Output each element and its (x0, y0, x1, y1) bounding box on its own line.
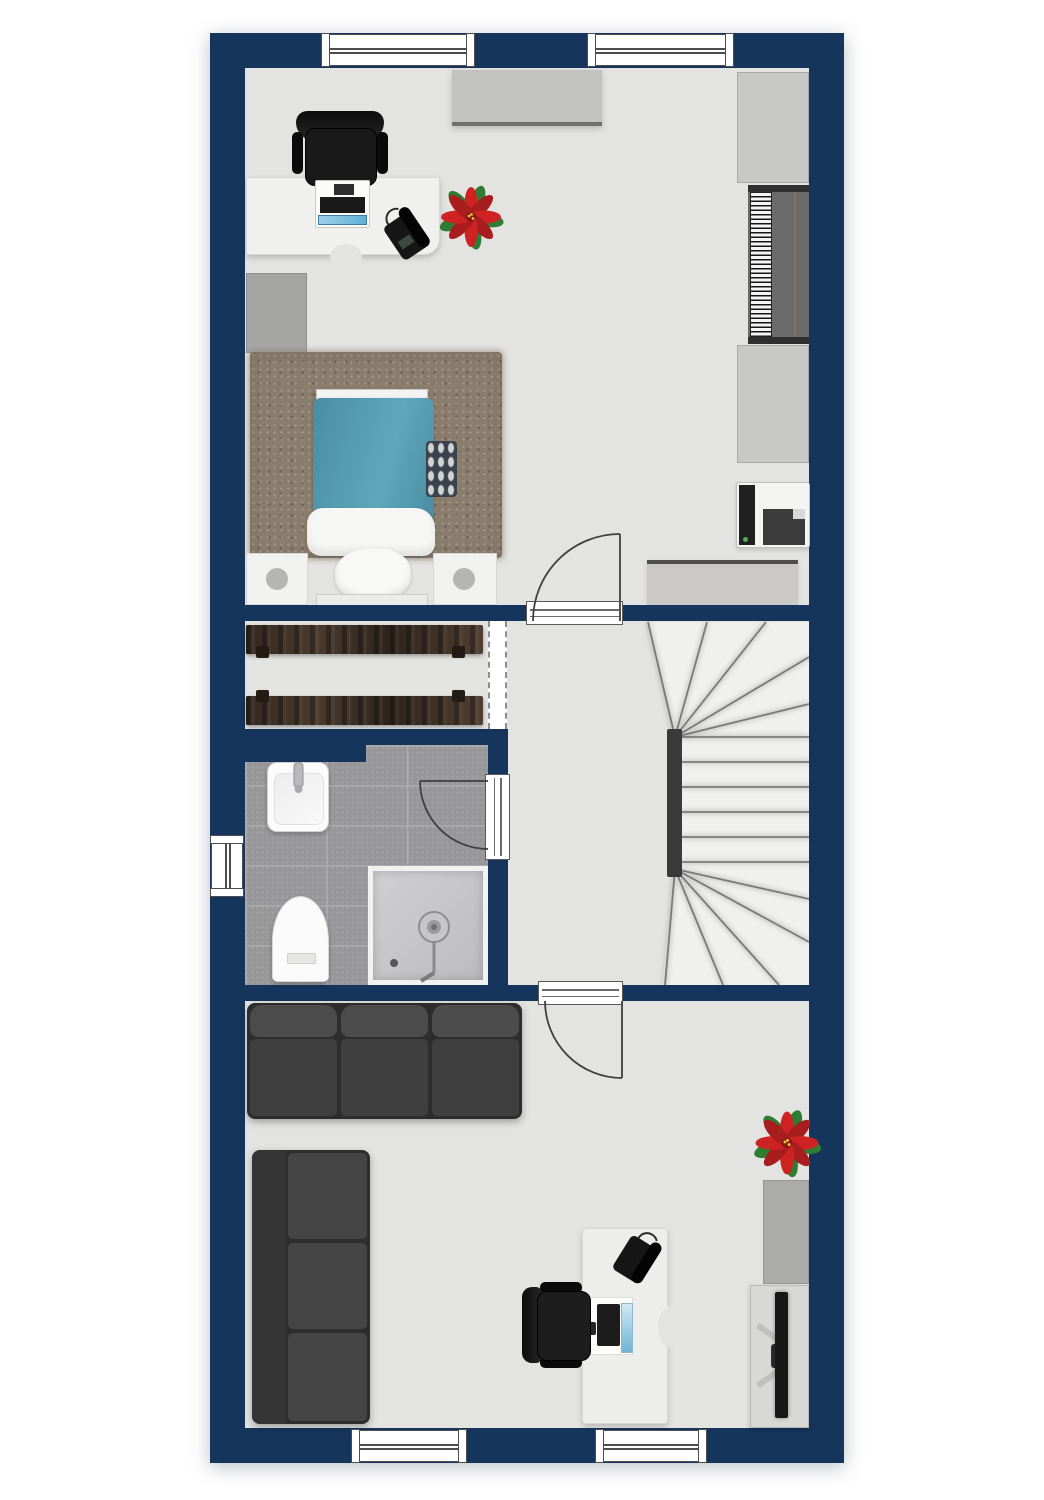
piano-keys (750, 192, 772, 337)
sofa-seat-cushion (250, 1039, 337, 1116)
printer-paper-tray (318, 215, 367, 225)
sofa-three-seat-top (247, 1003, 522, 1119)
sofa-seat-cushion (432, 1039, 519, 1116)
sofa-back-cushion (432, 1005, 519, 1037)
rail-bottom-tab-left (256, 690, 269, 702)
sofa-seat-cushion (341, 1039, 428, 1116)
fax-paper-corner (793, 509, 805, 519)
bathroom-door-threshold (485, 774, 510, 860)
fax-green-button (743, 537, 748, 542)
washbasin-bowl (274, 773, 324, 825)
office-chair-bedroom (290, 109, 390, 185)
piano (748, 185, 809, 344)
wall-bathroom-step2 (245, 745, 366, 762)
south-sideboard (647, 560, 798, 609)
east-cabinet-living (763, 1180, 809, 1284)
computer-keyboard (597, 1304, 620, 1346)
fax-control-strip (739, 485, 755, 545)
sofa-back-strip (252, 1150, 286, 1424)
computer-monitor (621, 1303, 633, 1353)
nightstand-left-knob (266, 568, 288, 590)
living-door-threshold (538, 981, 623, 1005)
chair-arm-left (292, 132, 303, 174)
washbasin (267, 762, 329, 832)
rail-bottom-tab-right (452, 690, 465, 702)
piano-string-line (794, 192, 796, 337)
window-bottom-right (596, 1430, 706, 1462)
living-desk-notch (658, 1306, 684, 1348)
printer-panel (320, 197, 365, 213)
window-top-right (588, 34, 733, 66)
floorplan-canvas (0, 0, 1044, 1500)
sofa-three-seat-left (252, 1150, 370, 1424)
rail-top-tab-left (256, 646, 269, 658)
computer-workstation (588, 1297, 633, 1355)
bedroom-door-threshold (526, 601, 623, 625)
wardrobe-north (737, 72, 809, 183)
room-landing (508, 621, 809, 985)
wall-hall-west-lower (487, 858, 508, 1001)
desktop-printer (315, 180, 370, 228)
bed-cushion-patterned (426, 441, 457, 497)
rail-top-tab-right (452, 646, 465, 658)
chair-seat (305, 128, 377, 186)
sofa-back-cushion (250, 1005, 337, 1037)
sofa-seat-cushion (288, 1153, 367, 1239)
sofa-seat-cushion (288, 1333, 367, 1421)
nightstand-right-knob (453, 568, 475, 590)
wall-closet-south (245, 729, 508, 745)
wall-dresser (452, 70, 602, 126)
toilet (272, 896, 329, 982)
bed-duvet (313, 398, 434, 518)
west-cabinet (246, 273, 307, 353)
office-chair-living (520, 1280, 592, 1370)
wall-hall-west-upper (487, 729, 508, 776)
chair-seat (537, 1291, 591, 1361)
wardrobe-rail-top (246, 625, 483, 654)
printer-fax-unit (736, 482, 810, 548)
window-top-left (322, 34, 474, 66)
sofa-seat-cushion (288, 1243, 367, 1329)
toilet-lid-hinge (287, 953, 316, 964)
bedroom-desk-notch (330, 244, 362, 270)
window-bottom-left (352, 1430, 466, 1462)
wardrobe-rail-bottom (246, 696, 483, 725)
chair-arm-right (377, 132, 388, 174)
tv-screen (775, 1292, 788, 1418)
closet-passage (488, 621, 507, 729)
tv-console (750, 1285, 809, 1428)
wardrobe-south (737, 345, 809, 463)
printer-button (334, 184, 354, 195)
sofa-back-cushion (341, 1005, 428, 1037)
window-west (211, 836, 243, 896)
wall-living-north (245, 985, 809, 1001)
shower (368, 866, 488, 985)
